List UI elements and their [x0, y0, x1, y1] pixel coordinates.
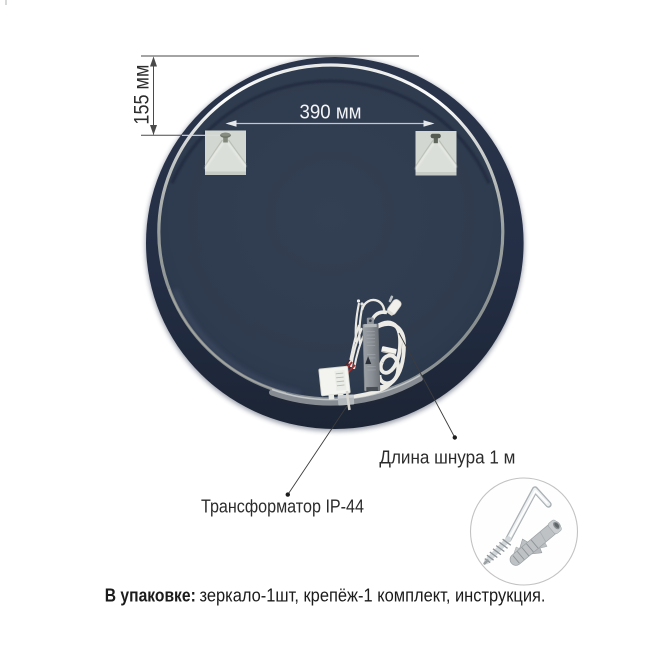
svg-text:Трансформатор IP-44: Трансформатор IP-44	[201, 496, 364, 517]
svg-text:В упаковке:: В упаковке:	[105, 586, 196, 606]
svg-text:390 мм: 390 мм	[300, 102, 362, 124]
svg-text:зеркало-1шт, крепёж-1 комплект: зеркало-1шт, крепёж-1 комплект, инструкц…	[200, 586, 546, 606]
svg-text:Длина шнура 1 м: Длина шнура 1 м	[379, 447, 515, 468]
svg-text:155 мм: 155 мм	[130, 65, 154, 125]
